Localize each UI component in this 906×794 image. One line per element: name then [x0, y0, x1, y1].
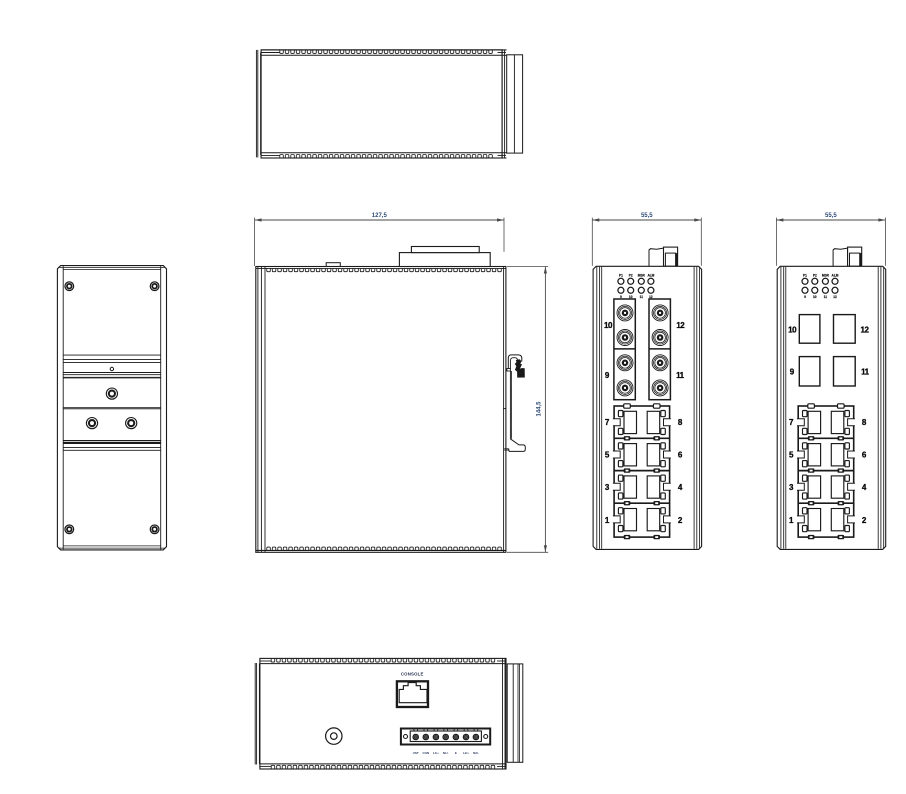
- svg-text:9: 9: [620, 295, 622, 299]
- svg-text:11: 11: [676, 371, 685, 380]
- svg-text:ALM: ALM: [832, 274, 839, 278]
- svg-text:9: 9: [804, 295, 806, 299]
- svg-text:11: 11: [861, 367, 870, 376]
- svg-text:MSR: MSR: [638, 274, 646, 278]
- svg-text:11: 11: [824, 295, 828, 299]
- svg-text:N1/-: N1/-: [443, 751, 449, 755]
- svg-text:P1: P1: [619, 274, 623, 278]
- svg-text:12: 12: [861, 326, 870, 335]
- svg-text:UST: UST: [413, 751, 419, 755]
- svg-text:12: 12: [676, 321, 685, 330]
- svg-text:10: 10: [629, 295, 633, 299]
- svg-text:55,5: 55,5: [825, 213, 837, 219]
- svg-text:ALM: ALM: [647, 274, 654, 278]
- svg-text:55,5: 55,5: [641, 213, 653, 219]
- svg-text:P1: P1: [803, 274, 807, 278]
- svg-text:10: 10: [788, 326, 797, 335]
- svg-text:10: 10: [813, 295, 817, 299]
- svg-text:L2/+: L2/+: [463, 751, 469, 755]
- svg-text:11: 11: [640, 295, 644, 299]
- svg-text:127,5: 127,5: [372, 213, 388, 219]
- svg-text:12: 12: [649, 295, 653, 299]
- svg-text:MSR: MSR: [822, 274, 830, 278]
- svg-text:144,5: 144,5: [537, 401, 543, 417]
- svg-text:CON: CON: [422, 751, 429, 755]
- svg-text:N2/-: N2/-: [473, 751, 479, 755]
- svg-text:P2: P2: [629, 274, 633, 278]
- svg-text:10: 10: [604, 321, 613, 330]
- svg-text:E: E: [455, 751, 457, 755]
- svg-text:12: 12: [833, 295, 837, 299]
- svg-text:CONSOLE: CONSOLE: [401, 671, 424, 676]
- svg-text:P2: P2: [813, 274, 817, 278]
- svg-text:L1/+: L1/+: [433, 751, 439, 755]
